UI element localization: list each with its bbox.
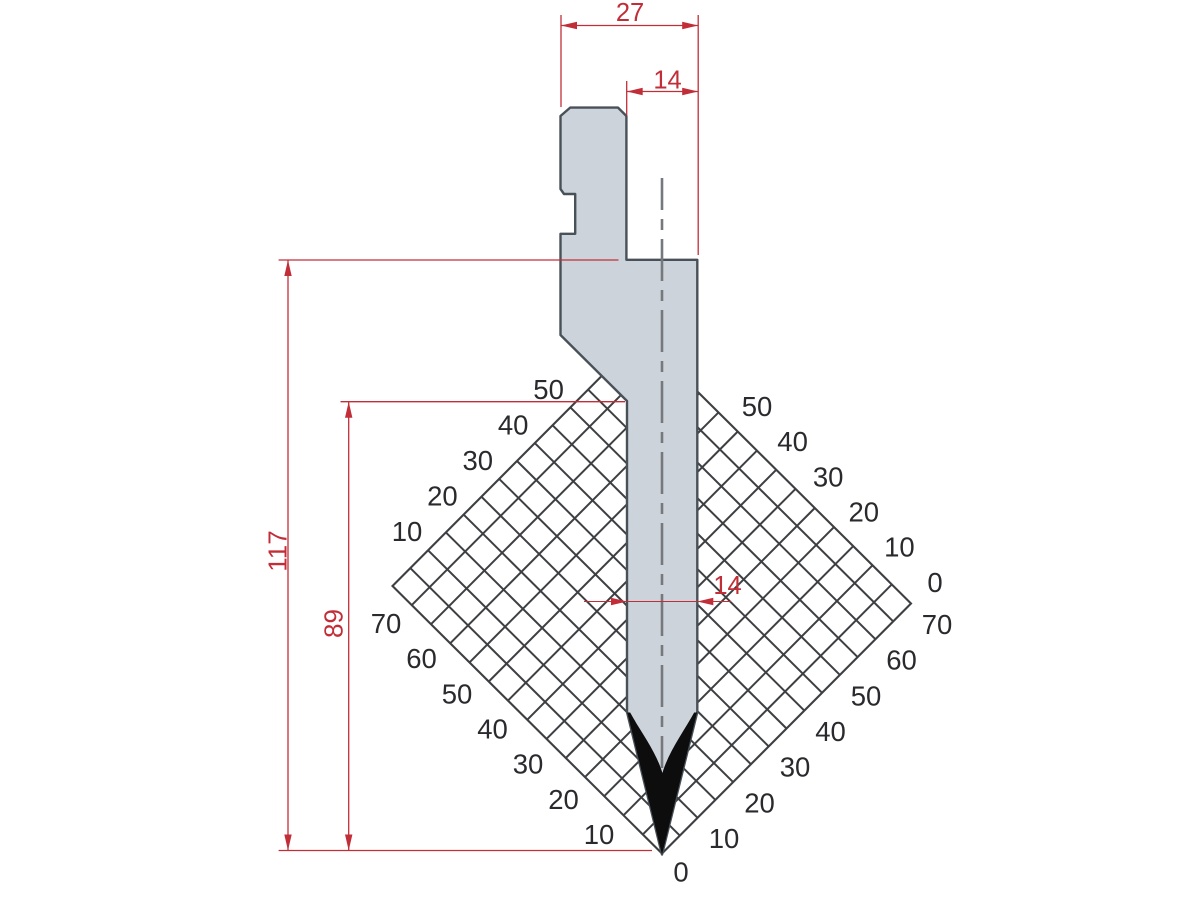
svg-text:60: 60 (406, 643, 437, 674)
svg-text:30: 30 (513, 749, 544, 780)
svg-text:50: 50 (442, 678, 473, 709)
svg-text:30: 30 (463, 445, 494, 476)
svg-text:20: 20 (849, 497, 880, 528)
svg-text:40: 40 (777, 426, 808, 457)
svg-text:70: 70 (371, 608, 402, 639)
svg-text:50: 50 (533, 374, 564, 405)
svg-text:27: 27 (616, 0, 644, 27)
svg-text:10: 10 (884, 532, 915, 563)
svg-text:0: 0 (673, 856, 688, 887)
svg-text:0: 0 (927, 567, 942, 598)
svg-text:50: 50 (742, 391, 773, 422)
svg-text:70: 70 (922, 609, 953, 640)
svg-text:14: 14 (713, 572, 741, 600)
svg-text:30: 30 (780, 752, 811, 783)
svg-text:20: 20 (427, 480, 458, 511)
svg-text:117: 117 (263, 530, 293, 571)
svg-text:60: 60 (886, 645, 917, 676)
svg-text:40: 40 (498, 409, 529, 440)
svg-text:10: 10 (584, 819, 615, 850)
svg-text:89: 89 (319, 609, 349, 638)
svg-text:50: 50 (851, 680, 882, 711)
svg-text:40: 40 (477, 714, 508, 745)
svg-text:20: 20 (548, 784, 579, 815)
svg-text:20: 20 (744, 787, 775, 818)
svg-text:30: 30 (813, 461, 844, 492)
svg-text:14: 14 (653, 67, 681, 95)
svg-text:10: 10 (392, 516, 423, 547)
svg-text:10: 10 (709, 823, 740, 854)
svg-text:40: 40 (815, 716, 846, 747)
